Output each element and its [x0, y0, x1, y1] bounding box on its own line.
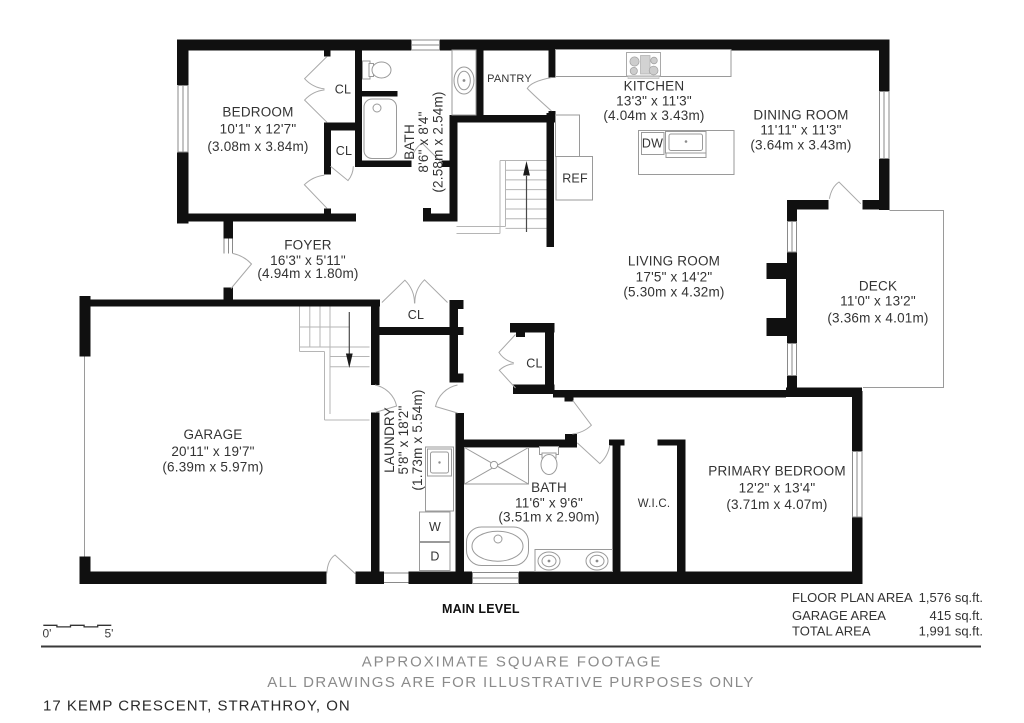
svg-text:KITCHEN: KITCHEN [624, 79, 685, 94]
svg-text:LIVING ROOM: LIVING ROOM [628, 254, 720, 269]
svg-text:BEDROOM: BEDROOM [222, 105, 293, 120]
svg-text:GARAGE: GARAGE [184, 427, 243, 442]
svg-text:415 sq.ft.: 415 sq.ft. [930, 608, 983, 623]
svg-text:(6.39m x 5.97m): (6.39m x 5.97m) [162, 460, 263, 475]
svg-text:DINING ROOM: DINING ROOM [753, 108, 848, 123]
svg-text:W: W [429, 520, 441, 534]
svg-text:CL: CL [526, 357, 543, 371]
svg-text:LAUNDRY: LAUNDRY [382, 407, 397, 473]
svg-text:(3.51m x 2.90m): (3.51m x 2.90m) [498, 510, 599, 525]
svg-text:(1.73m x 5.54m): (1.73m x 5.54m) [410, 389, 425, 490]
svg-text:13'3" x 11'3": 13'3" x 11'3" [616, 94, 692, 109]
svg-text:5': 5' [105, 627, 114, 641]
svg-text:APPROXIMATE SQUARE FOOTAGE: APPROXIMATE SQUARE FOOTAGE [362, 654, 663, 671]
svg-text:(4.04m x 3.43m): (4.04m x 3.43m) [603, 108, 704, 123]
svg-text:D: D [430, 550, 439, 564]
svg-text:CL: CL [336, 144, 353, 158]
svg-text:BATH: BATH [402, 124, 417, 160]
svg-text:17 KEMP CRESCENT, STRATHROY, O: 17 KEMP CRESCENT, STRATHROY, ON [43, 698, 351, 715]
svg-text:PANTRY: PANTRY [487, 73, 532, 85]
svg-text:0': 0' [43, 627, 52, 641]
svg-text:TOTAL AREA: TOTAL AREA [792, 624, 871, 639]
svg-text:(3.71m x 4.07m): (3.71m x 4.07m) [726, 497, 827, 512]
svg-text:DW: DW [642, 137, 663, 151]
svg-text:CL: CL [408, 308, 425, 322]
svg-text:(3.08m x 3.84m): (3.08m x 3.84m) [207, 139, 308, 154]
svg-text:FOYER: FOYER [284, 238, 332, 253]
svg-text:11'0" x 13'2": 11'0" x 13'2" [840, 294, 916, 309]
svg-text:1,576 sq.ft.: 1,576 sq.ft. [919, 590, 983, 605]
svg-text:(2.58m x 2.54m): (2.58m x 2.54m) [431, 91, 446, 192]
svg-text:17'5" x 14'2": 17'5" x 14'2" [636, 270, 713, 285]
svg-text:MAIN LEVEL: MAIN LEVEL [442, 602, 520, 616]
svg-text:5'8" x 18'2": 5'8" x 18'2" [396, 406, 411, 475]
svg-text:(3.64m x 3.43m): (3.64m x 3.43m) [750, 138, 851, 153]
svg-text:11'11" x 11'3": 11'11" x 11'3" [760, 123, 841, 138]
svg-text:DECK: DECK [859, 279, 897, 294]
svg-text:FLOOR PLAN AREA: FLOOR PLAN AREA [792, 590, 913, 605]
svg-text:(5.30m x 4.32m): (5.30m x 4.32m) [623, 285, 724, 300]
svg-text:GARAGE AREA: GARAGE AREA [792, 608, 886, 623]
svg-text:11'6" x 9'6": 11'6" x 9'6" [515, 496, 583, 511]
svg-text:PRIMARY BEDROOM: PRIMARY BEDROOM [708, 464, 846, 479]
svg-text:ALL DRAWINGS ARE FOR ILLUSTRAT: ALL DRAWINGS ARE FOR ILLUSTRATIVE PURPOS… [267, 674, 755, 691]
svg-text:10'1" x 12'7": 10'1" x 12'7" [220, 122, 297, 137]
svg-text:(4.94m x 1.80m): (4.94m x 1.80m) [257, 266, 358, 281]
svg-text:W.I.C.: W.I.C. [638, 498, 671, 510]
svg-text:BATH: BATH [531, 480, 567, 495]
svg-text:REF: REF [562, 172, 588, 186]
svg-text:CL: CL [335, 83, 352, 97]
svg-text:12'2" x 13'4": 12'2" x 13'4" [739, 481, 816, 496]
svg-text:20'11" x 19'7": 20'11" x 19'7" [171, 444, 254, 459]
svg-text:(3.36m x 4.01m): (3.36m x 4.01m) [827, 311, 928, 326]
svg-text:8'6" x 8'4": 8'6" x 8'4" [416, 111, 431, 172]
svg-text:1,991 sq.ft.: 1,991 sq.ft. [919, 624, 983, 639]
